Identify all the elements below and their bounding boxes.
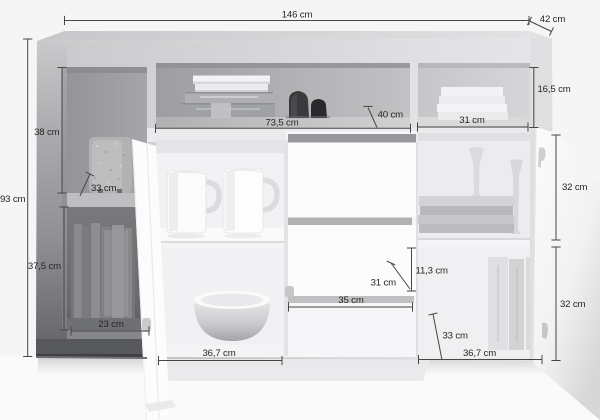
svg-text:36,7 cm: 36,7 cm — [463, 348, 496, 359]
svg-text:33 cm: 33 cm — [443, 331, 469, 342]
svg-text:35 cm: 35 cm — [338, 295, 364, 306]
svg-text:36,7 cm: 36,7 cm — [202, 348, 235, 359]
svg-text:16,5 cm: 16,5 cm — [538, 84, 571, 95]
svg-text:32 cm: 32 cm — [562, 182, 588, 193]
svg-text:33 cm: 33 cm — [91, 183, 117, 194]
svg-text:31 cm: 31 cm — [371, 278, 397, 289]
svg-text:23 cm: 23 cm — [98, 319, 124, 330]
svg-text:37,5 cm: 37,5 cm — [28, 261, 61, 272]
svg-text:11,3 cm: 11,3 cm — [416, 266, 449, 277]
svg-text:32 cm: 32 cm — [560, 299, 586, 310]
svg-text:40 cm: 40 cm — [378, 110, 404, 121]
svg-text:31 cm: 31 cm — [459, 115, 485, 126]
svg-text:146 cm: 146 cm — [282, 10, 313, 21]
svg-text:93 cm: 93 cm — [0, 194, 26, 205]
svg-text:42 cm: 42 cm — [540, 14, 566, 25]
svg-text:73,5 cm: 73,5 cm — [265, 118, 298, 129]
svg-text:38 cm: 38 cm — [34, 127, 60, 138]
